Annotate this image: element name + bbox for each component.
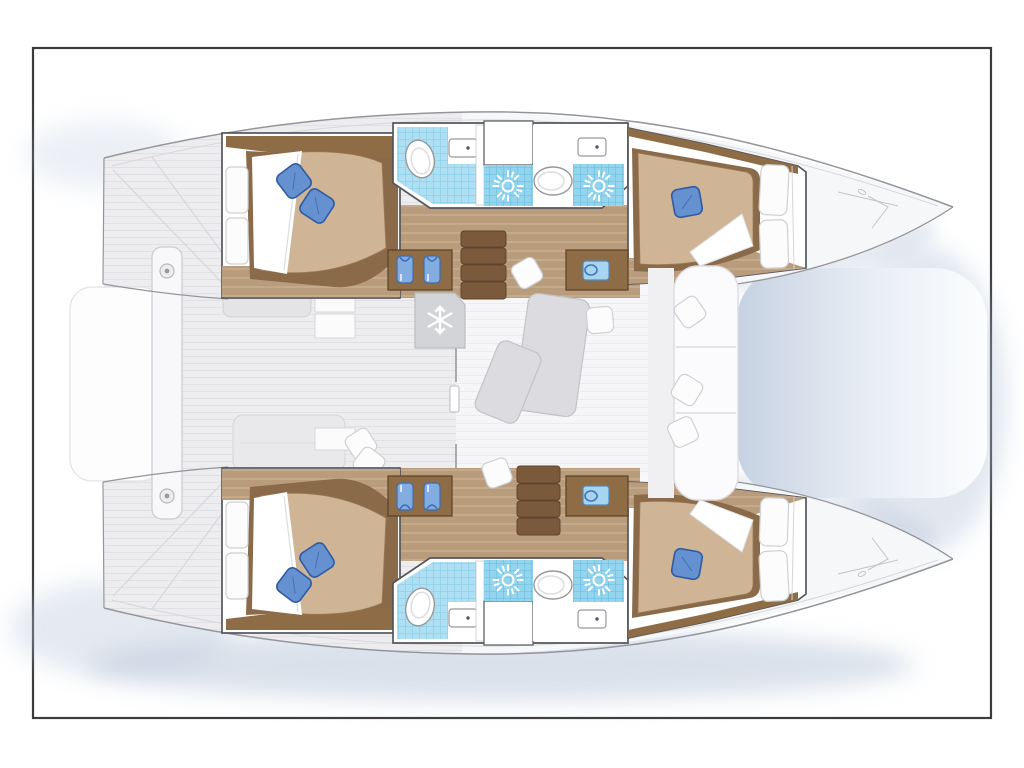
aft-platform <box>70 287 162 481</box>
cockpit-crossbeam <box>152 247 182 519</box>
stairs-starboard <box>517 466 560 535</box>
yacht-floor-plan: Catamaran sailing yacht floor plan — top… <box>0 0 1024 768</box>
sliding-door <box>450 386 459 412</box>
bow-lounge <box>648 266 738 500</box>
trampoline <box>737 268 987 498</box>
cockpit-shelf <box>315 314 355 338</box>
fridge-cabinet <box>415 293 465 348</box>
stairs-port <box>461 231 506 299</box>
bow-walkway <box>648 268 674 498</box>
